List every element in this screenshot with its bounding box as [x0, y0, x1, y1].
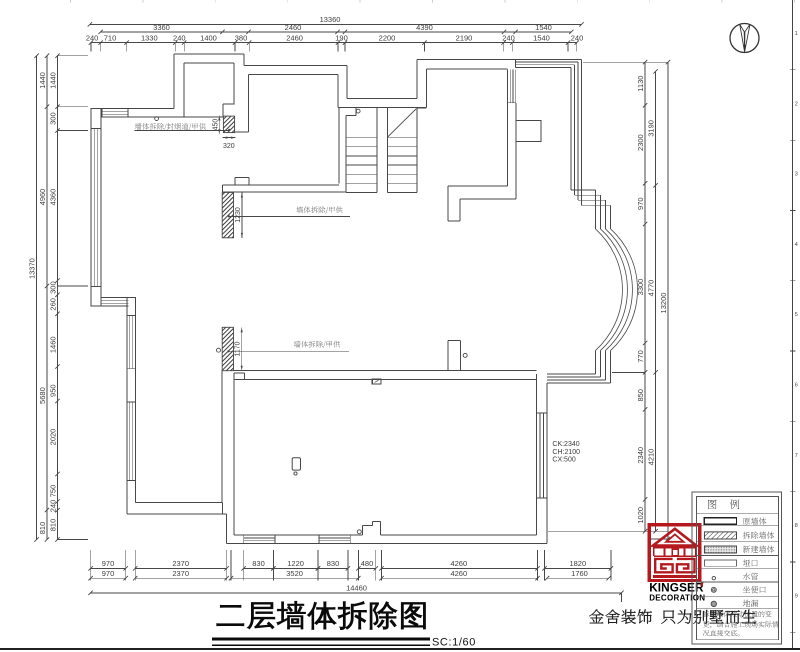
svg-text:CK:2340: CK:2340 [552, 441, 579, 448]
svg-text:2370: 2370 [172, 569, 189, 578]
svg-text:SC:1/60: SC:1/60 [432, 637, 476, 649]
svg-text:2370: 2370 [172, 559, 189, 568]
svg-text:970: 970 [636, 197, 645, 210]
svg-text:970: 970 [102, 569, 115, 578]
svg-text:CX:500: CX:500 [552, 457, 575, 464]
svg-text:1020: 1020 [636, 507, 645, 524]
svg-text:950: 950 [48, 384, 57, 397]
svg-text:3: 3 [795, 172, 798, 178]
svg-text:480: 480 [361, 559, 374, 568]
svg-text:810: 810 [48, 519, 57, 532]
svg-text:190: 190 [335, 34, 348, 43]
svg-text:810: 810 [38, 522, 47, 535]
svg-text:1220: 1220 [287, 559, 304, 568]
svg-text:1760: 1760 [571, 569, 588, 578]
svg-text:4210: 4210 [646, 449, 655, 466]
svg-text:830: 830 [327, 559, 340, 568]
svg-text:1440: 1440 [38, 72, 47, 89]
svg-text:6: 6 [795, 383, 798, 389]
svg-text:2020: 2020 [48, 429, 57, 446]
svg-text:3520: 3520 [286, 569, 303, 578]
svg-text:450: 450 [212, 119, 219, 131]
svg-text:5: 5 [795, 312, 798, 318]
svg-text:240: 240 [48, 500, 57, 513]
svg-text:13370: 13370 [27, 258, 36, 279]
svg-text:4360: 4360 [48, 189, 57, 206]
svg-text:9: 9 [795, 593, 798, 599]
svg-text:2460: 2460 [286, 34, 303, 43]
svg-text:4260: 4260 [450, 569, 467, 578]
svg-text:240: 240 [571, 34, 584, 43]
svg-text:KINGSER: KINGSER [649, 580, 704, 594]
svg-text:300: 300 [48, 281, 57, 294]
svg-text:240: 240 [86, 34, 99, 43]
svg-text:240: 240 [173, 34, 186, 43]
svg-text:830: 830 [252, 559, 265, 568]
svg-text:240: 240 [502, 34, 515, 43]
svg-text:970: 970 [102, 559, 115, 568]
svg-text:3190: 3190 [646, 120, 655, 137]
svg-text:1540: 1540 [533, 34, 550, 43]
svg-text:850: 850 [636, 389, 645, 402]
svg-text:4390: 4390 [416, 23, 433, 32]
svg-text:380: 380 [235, 34, 248, 43]
svg-text:710: 710 [104, 34, 117, 43]
svg-text:4260: 4260 [450, 559, 467, 568]
svg-text:13200: 13200 [659, 293, 668, 314]
svg-text:14460: 14460 [346, 584, 367, 593]
svg-text:1820: 1820 [569, 559, 586, 568]
svg-text:CH:2100: CH:2100 [552, 449, 580, 456]
svg-text:2340: 2340 [636, 447, 645, 464]
svg-text:5680: 5680 [38, 387, 47, 404]
svg-text:2200: 2200 [379, 34, 396, 43]
svg-text:DECORATION: DECORATION [649, 593, 705, 602]
svg-text:320: 320 [223, 143, 235, 150]
svg-text:300: 300 [48, 112, 57, 125]
svg-text:2190: 2190 [456, 34, 473, 43]
svg-text:1230: 1230 [235, 207, 242, 223]
svg-text:2: 2 [795, 101, 798, 107]
svg-text:2300: 2300 [636, 134, 645, 151]
svg-text:8: 8 [795, 523, 798, 529]
svg-text:1: 1 [795, 31, 798, 37]
svg-text:4: 4 [795, 242, 798, 248]
svg-text:260: 260 [48, 298, 57, 311]
svg-text:1400: 1400 [200, 34, 217, 43]
svg-text:4960: 4960 [38, 189, 47, 206]
svg-text:1130: 1130 [636, 76, 645, 92]
svg-text:3360: 3360 [153, 23, 170, 32]
svg-text:4770: 4770 [646, 280, 655, 297]
svg-text:750: 750 [48, 485, 57, 498]
svg-text:1540: 1540 [535, 23, 552, 32]
svg-text:2460: 2460 [285, 23, 302, 32]
svg-text:1170: 1170 [235, 341, 242, 356]
svg-text:770: 770 [636, 350, 645, 363]
svg-text:13360: 13360 [320, 15, 341, 24]
svg-text:1440: 1440 [48, 72, 57, 89]
svg-text:1460: 1460 [48, 336, 57, 353]
svg-text:7: 7 [795, 453, 798, 459]
svg-text:1330: 1330 [141, 34, 158, 43]
